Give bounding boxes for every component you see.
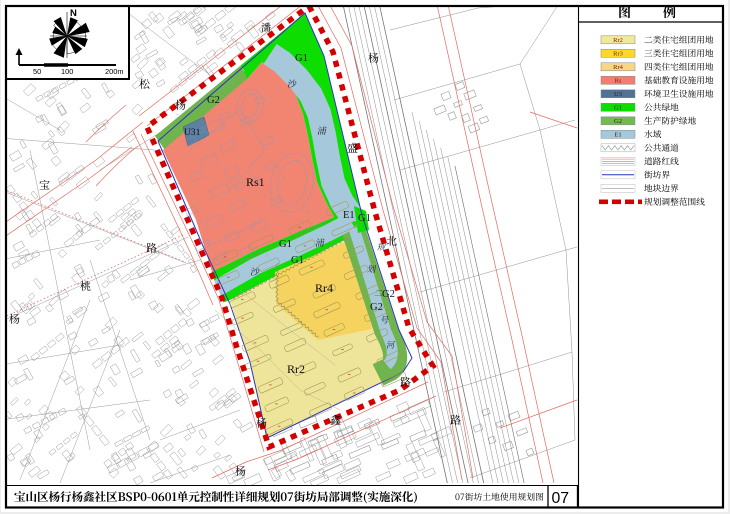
svg-text:100: 100: [61, 67, 73, 76]
svg-text:E1: E1: [614, 132, 621, 139]
svg-text:G1: G1: [279, 239, 292, 250]
svg-text:Rs: Rs: [615, 78, 622, 85]
svg-text:07: 07: [552, 490, 570, 507]
svg-text:Rr4: Rr4: [613, 64, 624, 71]
svg-text:G1: G1: [295, 53, 308, 64]
svg-text:G2: G2: [614, 118, 622, 125]
svg-text:G2: G2: [370, 302, 383, 313]
svg-text:200m: 200m: [105, 67, 124, 76]
svg-text:Rr3: Rr3: [613, 51, 623, 58]
svg-text:Rr2: Rr2: [613, 37, 623, 44]
svg-text:Rr4: Rr4: [315, 281, 333, 295]
svg-text:G2: G2: [382, 289, 395, 300]
svg-text:G2: G2: [207, 95, 220, 106]
svg-text:G1: G1: [291, 255, 304, 266]
svg-text:U31: U31: [184, 128, 201, 138]
svg-text:G1: G1: [614, 105, 622, 112]
svg-text:N: N: [70, 8, 77, 19]
svg-text:50: 50: [33, 67, 41, 76]
svg-text:G1: G1: [358, 213, 371, 224]
svg-text:Rr2: Rr2: [287, 362, 305, 376]
svg-text:Rs1: Rs1: [246, 175, 265, 189]
svg-text:E1: E1: [343, 210, 355, 221]
svg-text:U3: U3: [614, 91, 622, 98]
